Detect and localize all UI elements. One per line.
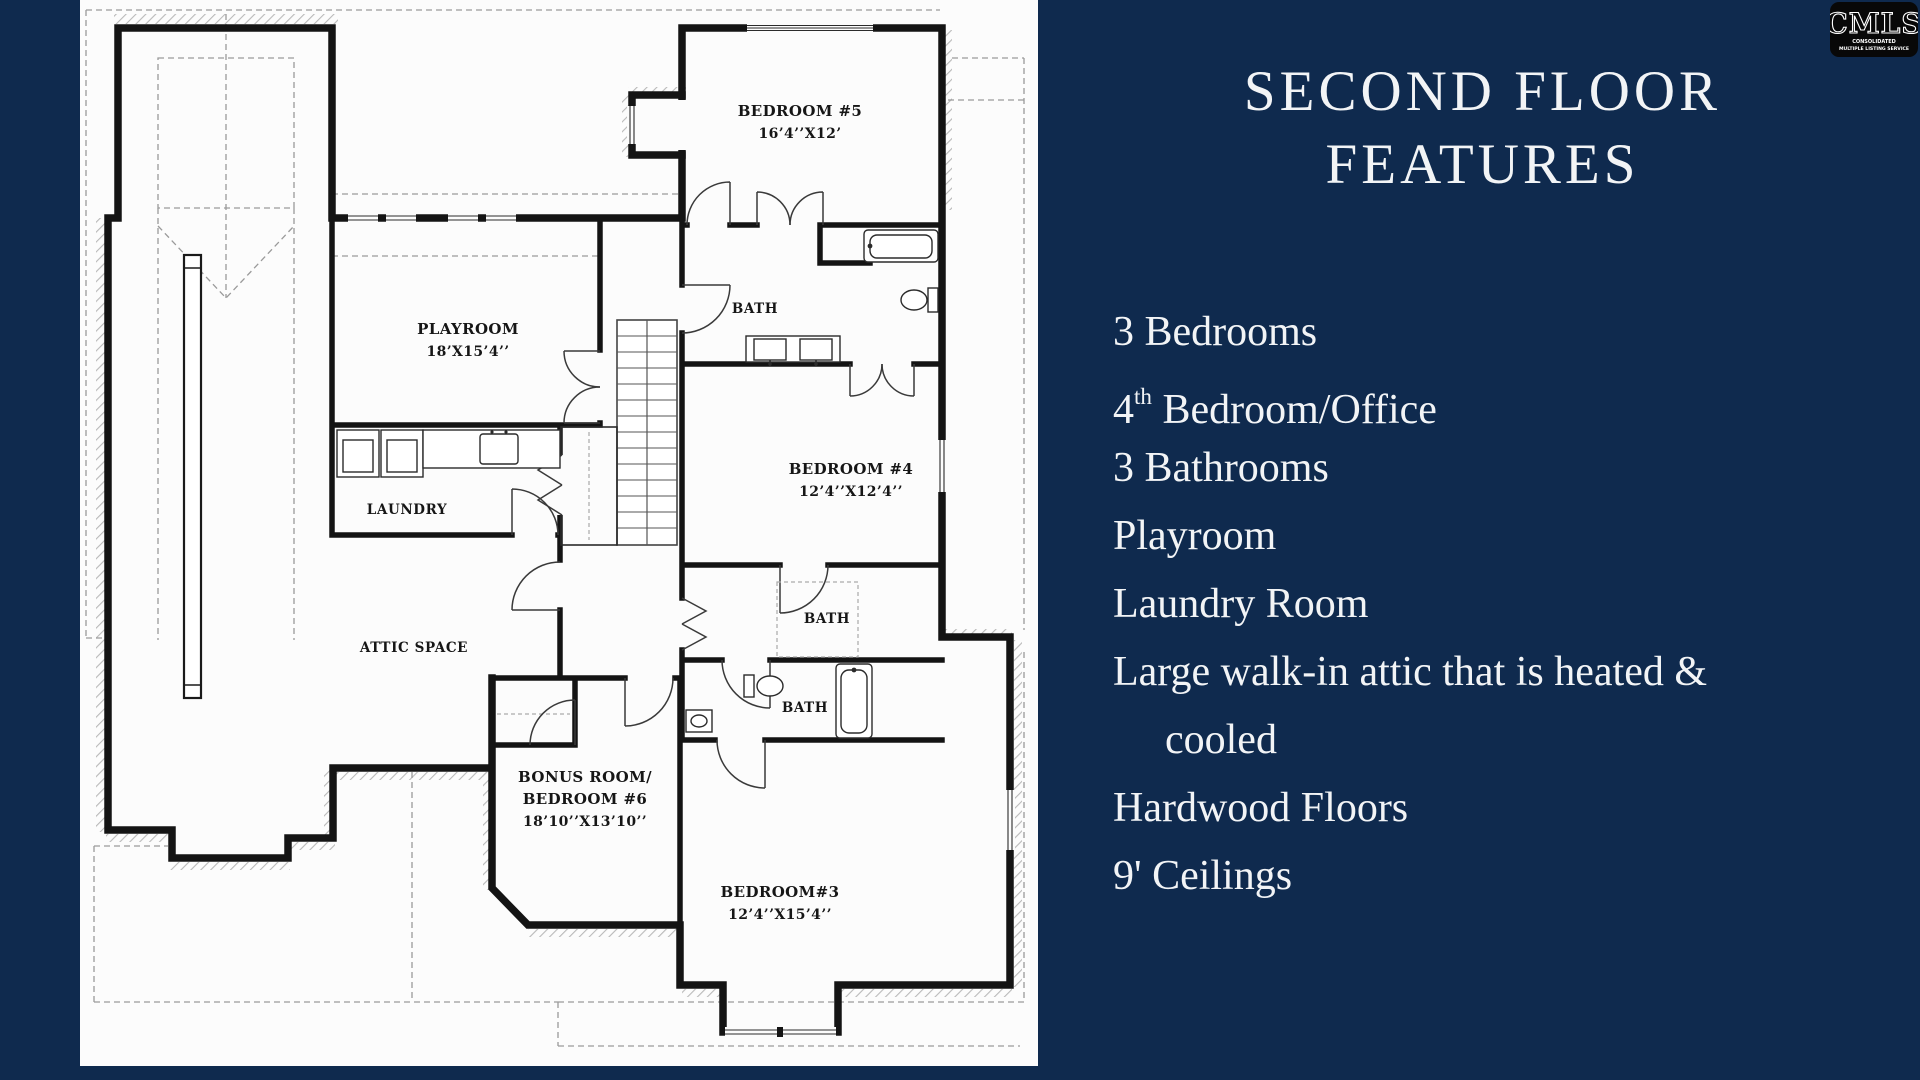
- svg-text:16’4’’X12’: 16’4’’X12’: [758, 126, 841, 142]
- room-label-bath3: BATH: [782, 700, 828, 716]
- features-title: SECOND FLOOR FEATURES: [1075, 56, 1890, 202]
- features-title-line2: FEATURES: [1075, 129, 1890, 202]
- room-label-bath1: BATH: [732, 301, 778, 317]
- svg-text:BEDROOM #4: BEDROOM #4: [789, 460, 914, 478]
- bath-hall-bifold: [682, 598, 706, 650]
- feature-item: Large walk-in attic that is heated &: [1113, 638, 1890, 706]
- room-label-playroom: PLAYROOM 18’X15’4’’: [417, 320, 519, 360]
- feature-item: Laundry Room: [1113, 570, 1890, 638]
- svg-text:BATH: BATH: [732, 301, 778, 317]
- feature-item: 3 Bathrooms: [1113, 434, 1890, 502]
- svg-text:18’X15’4’’: 18’X15’4’’: [426, 344, 509, 360]
- features-list: 3 Bedrooms4th Bedroom/Office3 BathroomsP…: [1075, 298, 1890, 910]
- svg-text:BEDROOM #6: BEDROOM #6: [523, 790, 648, 808]
- room-label-bath2: BATH: [804, 611, 850, 627]
- feature-item-wrap: cooled: [1113, 706, 1890, 774]
- room-label-bonus: BONUS ROOM/ BEDROOM #6 18’10’’X13’10’’: [518, 768, 652, 830]
- svg-text:BEDROOM#3: BEDROOM#3: [721, 883, 840, 901]
- floor-plan: BEDROOM #5 16’4’’X12’ PLAYROOM 18’X15’4’…: [80, 0, 1038, 1066]
- room-label-bedroom4: BEDROOM #4 12’4’’X12’4’’: [789, 460, 914, 500]
- svg-text:PLAYROOM: PLAYROOM: [417, 320, 519, 338]
- feature-item: 4th Bedroom/Office: [1113, 366, 1890, 434]
- feature-item: Playroom: [1113, 502, 1890, 570]
- floor-plan-panel: BEDROOM #5 16’4’’X12’ PLAYROOM 18’X15’4’…: [80, 0, 1038, 1066]
- cmls-logo-sub1: CONSOLIDATED: [1852, 39, 1896, 45]
- svg-text:18’10’’X13’10’’: 18’10’’X13’10’’: [523, 814, 647, 830]
- cmls-logo-sub2: MULTIPLE LISTING SERVICE: [1839, 46, 1909, 52]
- svg-text:BATH: BATH: [782, 700, 828, 716]
- svg-text:12’4’’X12’4’’: 12’4’’X12’4’’: [799, 484, 903, 500]
- svg-text:ATTIC SPACE: ATTIC SPACE: [359, 640, 468, 656]
- bath3-fixtures: [686, 664, 872, 738]
- features-title-line1: SECOND FLOOR: [1075, 56, 1890, 129]
- cmls-logo-art: CMLS CONSOLIDATED MULTIPLE LISTING SERVI…: [1830, 2, 1918, 57]
- svg-text:BATH: BATH: [804, 611, 850, 627]
- feature-item: 3 Bedrooms: [1113, 298, 1890, 366]
- bath1-fixtures: [746, 230, 938, 366]
- dormer-nook-walls: [632, 95, 682, 155]
- cmls-logo: CMLS CONSOLIDATED MULTIPLE LISTING SERVI…: [1830, 2, 1918, 57]
- staircase: [617, 320, 677, 545]
- attic-chase: [184, 255, 201, 698]
- cmls-logo-text: CMLS: [1830, 7, 1918, 40]
- listing-slide: { "background_color": "#0F2A4E", "plan_b…: [0, 0, 1920, 1080]
- room-label-laundry: LAUNDRY: [367, 502, 447, 518]
- svg-text:BONUS ROOM/: BONUS ROOM/: [518, 768, 652, 786]
- roof-dashed-lines: [86, 10, 1024, 1046]
- features-panel: SECOND FLOOR FEATURES 3 Bedrooms4th Bedr…: [1075, 56, 1890, 910]
- feature-item: 9' Ceilings: [1113, 842, 1890, 910]
- svg-text:LAUNDRY: LAUNDRY: [367, 502, 447, 518]
- svg-text:BEDROOM #5: BEDROOM #5: [738, 102, 863, 120]
- room-label-attic: ATTIC SPACE: [359, 640, 468, 656]
- room-label-bedroom3: BEDROOM#3 12’4’’X15’4’’: [721, 883, 840, 923]
- feature-item: Hardwood Floors: [1113, 774, 1890, 842]
- room-label-bedroom5: BEDROOM #5 16’4’’X12’: [738, 102, 863, 142]
- laundry-fixtures: [337, 430, 560, 477]
- svg-text:12’4’’X15’4’’: 12’4’’X15’4’’: [728, 907, 832, 923]
